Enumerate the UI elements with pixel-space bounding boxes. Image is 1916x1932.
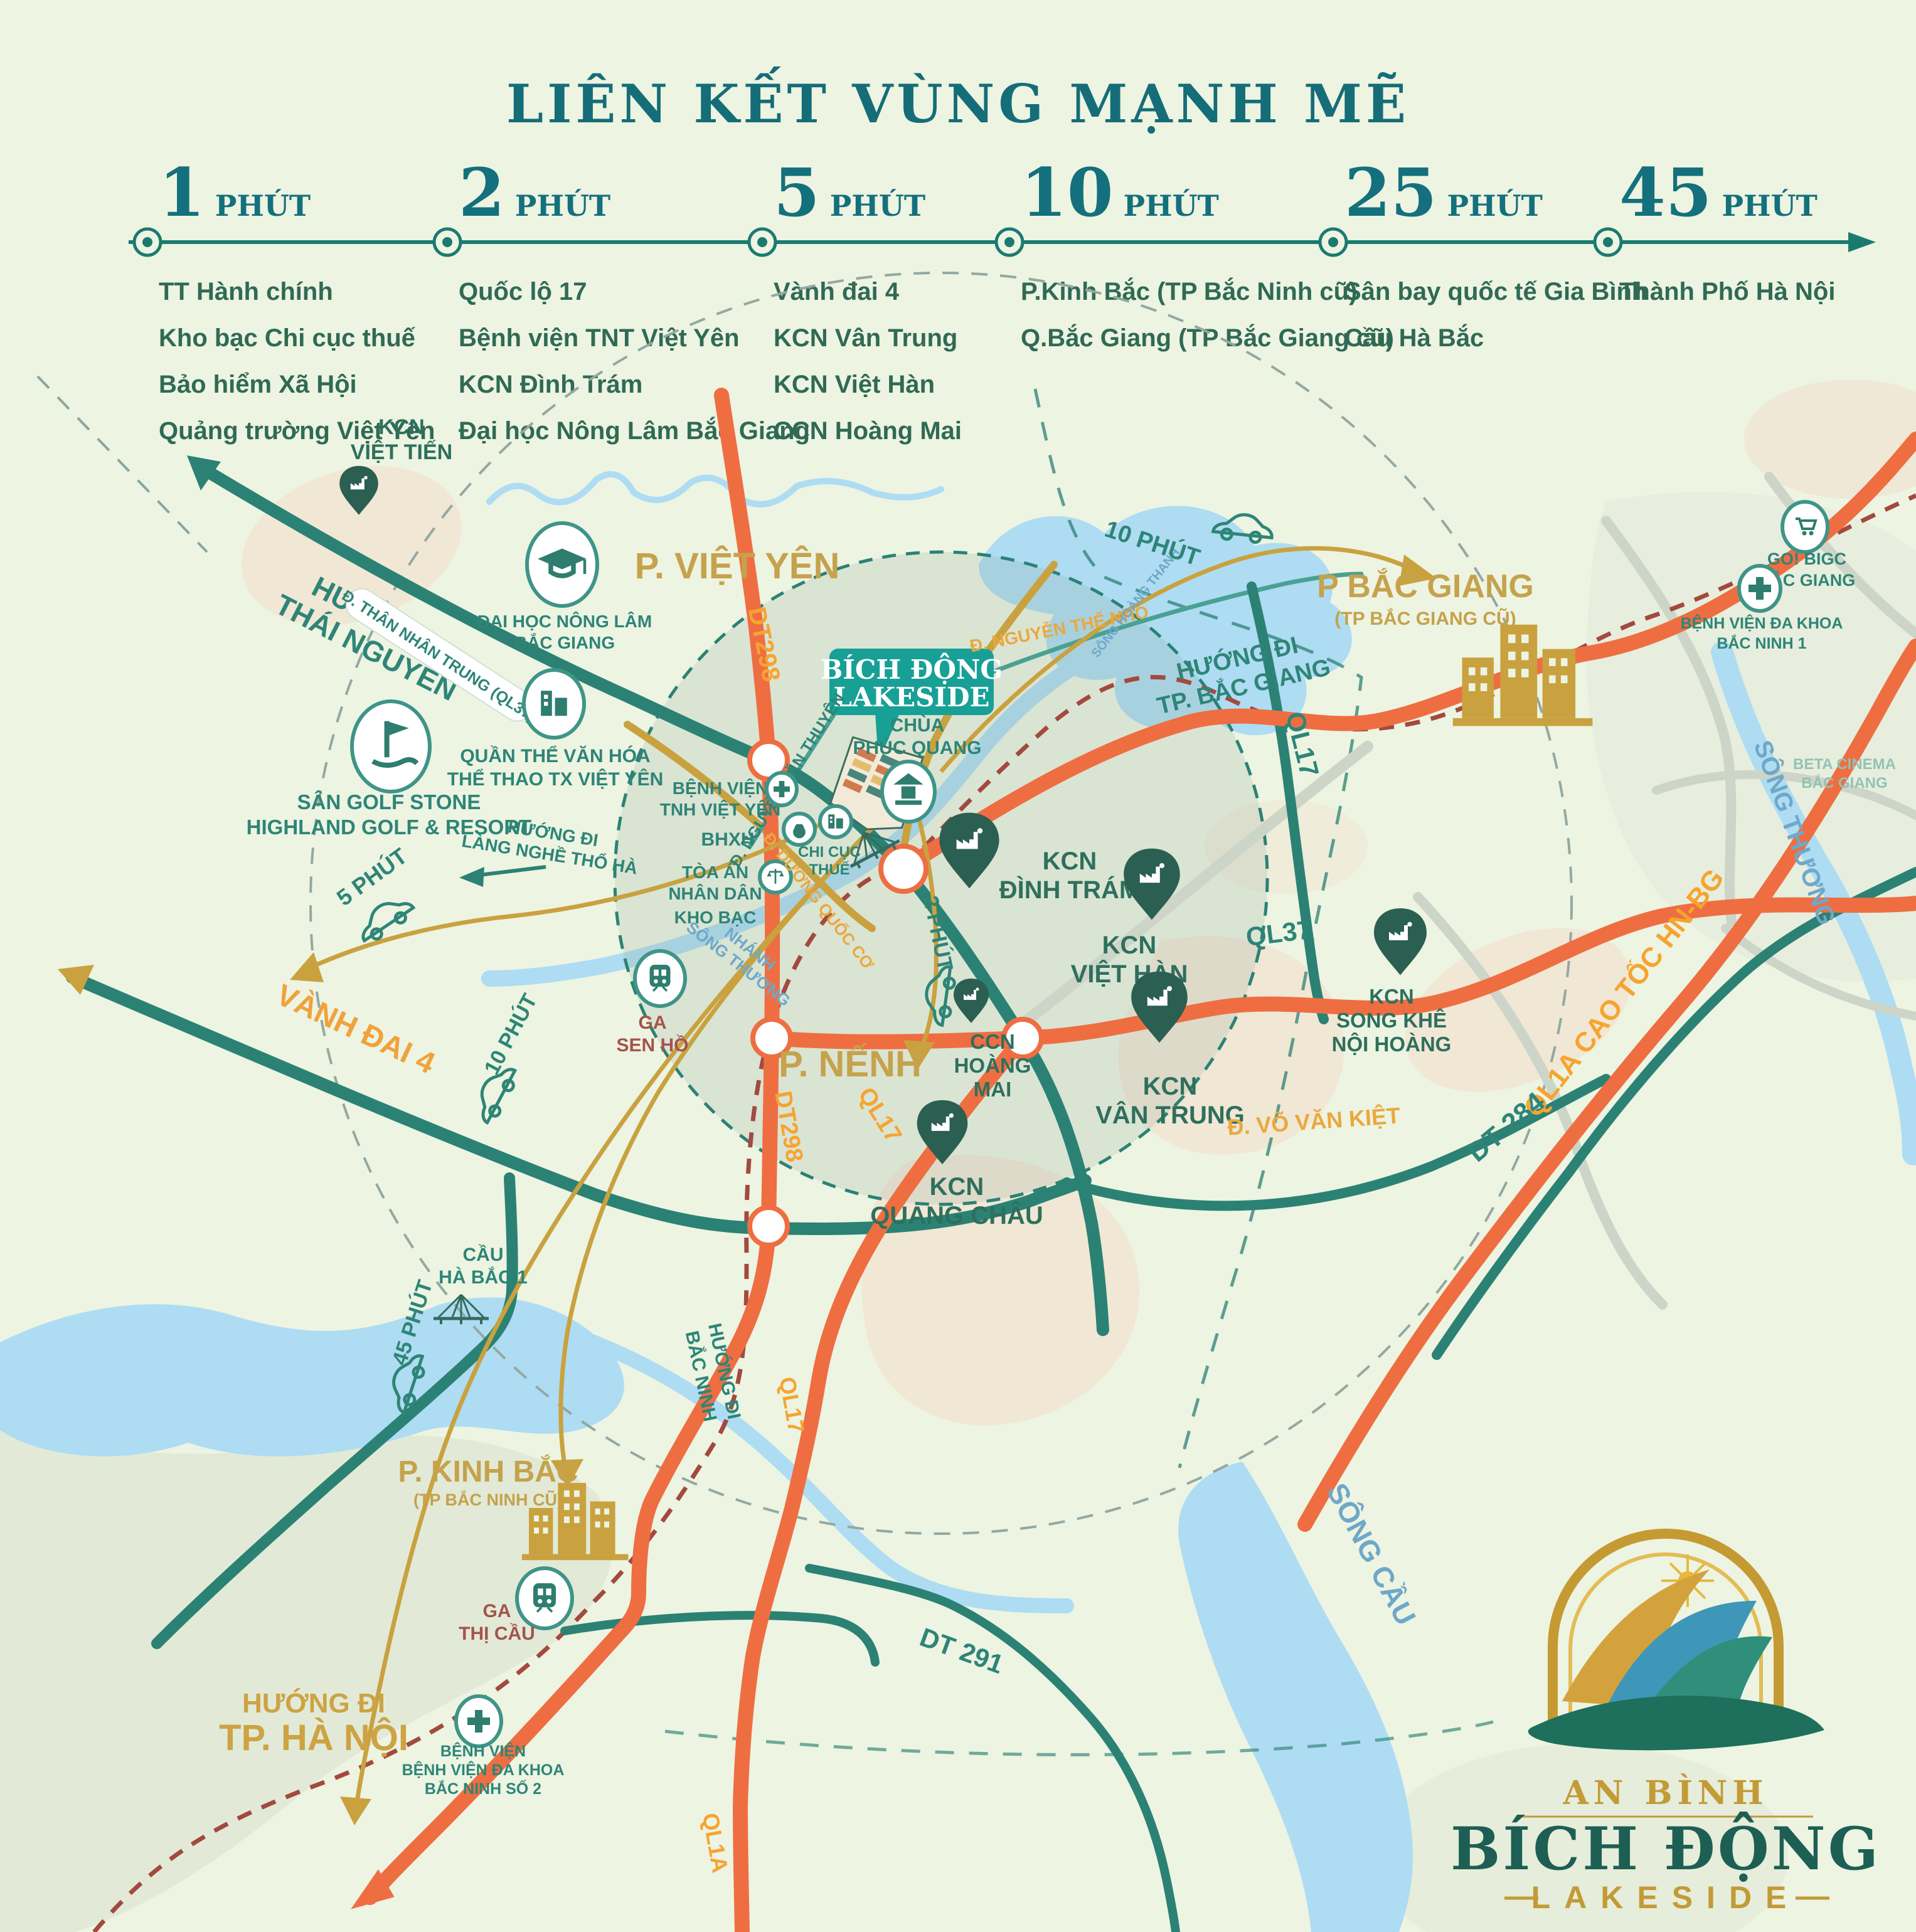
logo-name: BÍCH ĐỘNG bbox=[1450, 1812, 1881, 1884]
badge-line-1: BÍCH ĐỘNG bbox=[821, 652, 1003, 685]
map-infographic: LIÊN KẾT VÙNG MẠNH MẼ 1PHÚT TT Hành chín… bbox=[0, 0, 1916, 1932]
label-huong-hanoi-2: TP. HÀ NỘI bbox=[219, 1717, 408, 1758]
logo-brand: AN BÌNH bbox=[1563, 1773, 1769, 1812]
label-huong-hanoi-1: HƯỚNG ĐI bbox=[242, 1687, 385, 1719]
tax-buildings-circle-icon bbox=[820, 806, 851, 837]
shopping-icon bbox=[1782, 502, 1828, 552]
culture-complex-icon bbox=[524, 670, 584, 738]
label-p-kinh-bac: P. KINH BẮC bbox=[398, 1454, 578, 1489]
label-p-nenh: P. NẾNH bbox=[779, 1044, 922, 1085]
project-badge: BÍCH ĐỘNG LAKESIDE bbox=[821, 649, 1003, 715]
label-p-kinh-bac-sub: (TP BẮC NINH CŨ) bbox=[413, 1490, 563, 1509]
page-title: LIÊN KẾT VÙNG MẠNH MẼ bbox=[506, 66, 1410, 135]
label-kho-bac: KHO BẠC bbox=[674, 908, 757, 927]
label-p-viet-yen: P. VIỆT YÊN bbox=[635, 546, 840, 586]
label-p-bac-giang: P BẮC GIANG bbox=[1317, 568, 1534, 605]
timeline-items-6: Thành Phố Hà Nội bbox=[1619, 278, 1835, 305]
label-bhxh: BHXH bbox=[701, 829, 754, 850]
logo-tagline: LAKESIDE bbox=[1531, 1880, 1801, 1915]
label-p-bac-giang-sub: (TP BẮC GIANG CŨ) bbox=[1334, 608, 1516, 629]
badge-line-2: LAKESIDE bbox=[833, 682, 989, 713]
golf-icon bbox=[352, 701, 430, 792]
